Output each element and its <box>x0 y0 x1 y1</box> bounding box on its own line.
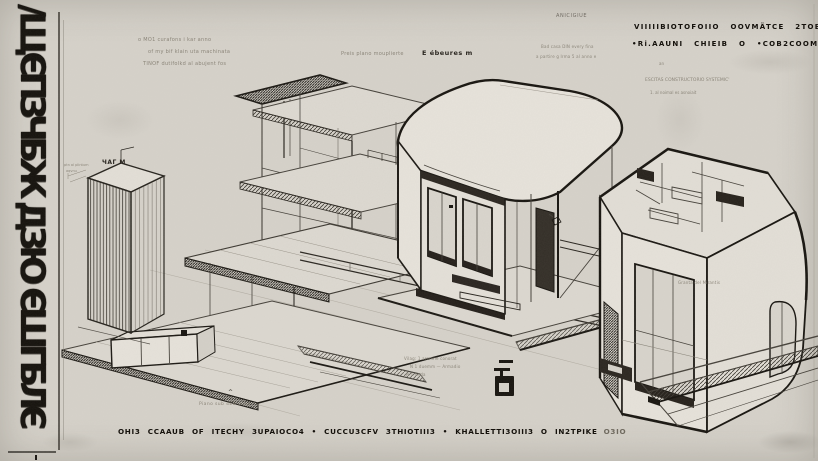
piano-label: Piano sub 4EB dove <box>199 402 251 407</box>
top-right-small-3: 1. al noimal es asnoiait <box>650 90 696 95</box>
scanned-architectural-drawing: ∕ЩЄПЗЧБЖ ДЗЮ ЄШГБЛЄ o MO1 curafons i kar… <box>0 0 818 461</box>
tower-note-1: ptn al plintum <box>64 163 89 167</box>
top-right-bold-2: •Ri.AAUNI CHIEIB O •COB2COOMO OHIO <box>632 40 818 48</box>
footer-caption-tail: O3IO <box>604 427 627 436</box>
ink-mark <box>449 205 453 208</box>
top-right-small-1: an <box>659 61 664 66</box>
note-plans: Preis plano mouplierte <box>341 51 404 57</box>
legend-line-1: Vilag: 1 aremne conorat <box>404 356 457 361</box>
legend-bar-icon <box>499 360 513 363</box>
note-top-left-1: o MO1 curafons i kar anno <box>138 37 211 43</box>
table-icon <box>494 368 510 377</box>
top-right-bold-1: VIIIIIBIOTOFOIIO OOVMÄTCE 2TOBIOC3OCII <box>634 23 818 31</box>
footer-caption: OHI3 CCAAUB OF ITECHY 3UPAIOCO4 • CUCCU3… <box>118 427 626 436</box>
top-right-small-2: ESCITAS CONSTRUCTORIO SYSTEMIC' <box>645 78 730 83</box>
title-band: ∕ЩЄПЗЧБЖ ДЗЮ ЄШГБЛЄ <box>4 4 60 456</box>
tower-note-2: aqvnu <box>66 169 77 173</box>
footer-caption-text: OHI3 CCAAUB OF ITECHY 3UPAIOCO4 • CUCCU3… <box>118 427 598 436</box>
ink-mark <box>181 330 187 336</box>
tower-label: ЧАГ М <box>102 159 126 166</box>
title-band-lettering: ∕ЩЄПЗЧБЖ ДЗЮ ЄШГБЛЄ <box>4 4 60 456</box>
right-house <box>600 149 818 432</box>
stove-icon <box>495 376 514 396</box>
granta-label: Granta del Mirantis <box>678 280 720 285</box>
hatched-tower <box>68 147 164 344</box>
band-rule <box>58 12 60 450</box>
legend-line-2: N 1 duemm — Armadio <box>410 364 461 369</box>
legend-line-3: N 1 onda <box>406 372 426 377</box>
note-mid-right-1: Bad casa DIN every fina <box>541 44 594 49</box>
note-mid-right-2: a partire g Irma 5 al anno e <box>536 54 596 59</box>
band-rule-faint <box>63 20 64 440</box>
note-e-label: E ébeures m <box>422 49 473 57</box>
note-articolo: ANICIGIUE <box>556 13 587 19</box>
piano-caret: ^ <box>228 389 233 396</box>
axonometric-drawing <box>0 0 818 461</box>
note-top-left-2: of my bif klain uta machinata <box>148 49 230 55</box>
note-top-left-3: TINOF dutifolkd al abujent fos <box>143 61 226 67</box>
